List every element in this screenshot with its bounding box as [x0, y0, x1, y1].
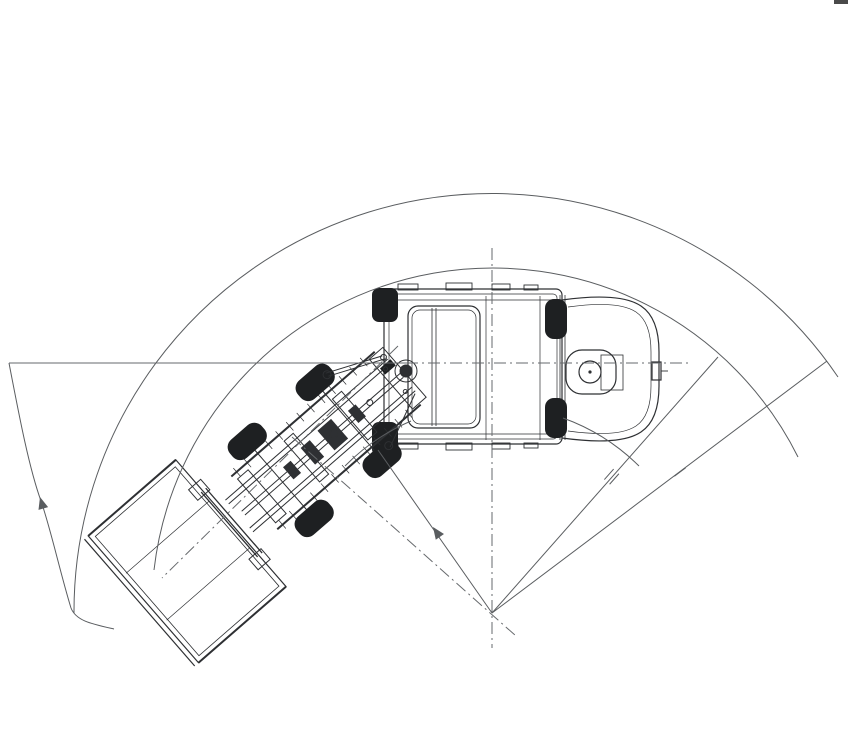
bucket-ribs	[126, 501, 250, 620]
radius-mark-I	[674, 468, 685, 476]
shaft-coupling	[301, 440, 324, 464]
inner-clearance-arc	[154, 268, 798, 570]
front-wheel	[290, 496, 337, 542]
cab-roof-brackets	[398, 283, 538, 450]
radial-line-outer	[492, 361, 827, 613]
cab-panel-seams	[486, 296, 540, 440]
rear-wheel-right	[545, 299, 567, 339]
cab-inner-outline	[389, 294, 557, 439]
bolt	[366, 398, 374, 406]
roof-hatch	[408, 306, 480, 428]
quick-attach-plate	[201, 488, 262, 557]
front-frame-centerline	[162, 346, 398, 578]
plate-corner	[249, 549, 270, 570]
pod-side-box	[601, 355, 623, 390]
page-edge-artifact	[834, 0, 848, 4]
front-axle-line	[292, 437, 516, 636]
hood-outline	[562, 297, 659, 441]
outer-clearance-arc	[74, 194, 838, 613]
rear-latch	[652, 362, 661, 380]
bucket-cutting-edge	[84, 539, 194, 666]
cab-roof-edges	[390, 300, 556, 434]
boom-arm-left	[277, 405, 420, 530]
front-unit	[84, 309, 459, 666]
air-cleaner-dot	[588, 370, 591, 373]
articulation-joint	[400, 365, 413, 378]
tick	[674, 468, 685, 476]
front-wheel	[291, 360, 338, 406]
front-wheel	[224, 419, 271, 465]
turning-radius-drawing	[0, 0, 848, 733]
turning-radius-diagram-page	[0, 0, 848, 733]
roof-hatch-inner	[412, 310, 476, 424]
roof-hatch-divider	[432, 308, 436, 426]
gearbox-block	[317, 419, 348, 450]
radial-line-inner	[492, 357, 718, 613]
sweep-arrowhead	[35, 496, 48, 510]
bolt	[402, 389, 408, 395]
bucket-sweep-curve	[9, 363, 114, 629]
clearance-arcs	[9, 194, 838, 629]
radial-limit-lines	[378, 357, 827, 613]
shaft-coupling	[283, 461, 301, 480]
hood-inner-line	[568, 304, 651, 433]
bucket-outline	[88, 460, 286, 663]
bucket-side-walls	[88, 460, 286, 663]
mid-wheel-right	[372, 288, 398, 322]
